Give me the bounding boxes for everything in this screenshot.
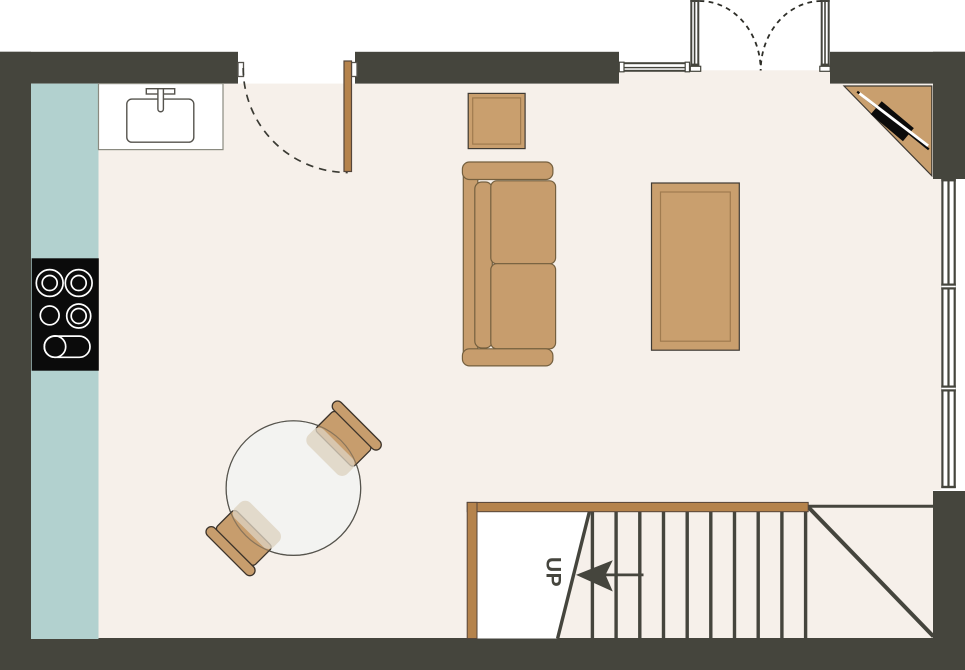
svg-text:UP: UP xyxy=(542,557,565,587)
